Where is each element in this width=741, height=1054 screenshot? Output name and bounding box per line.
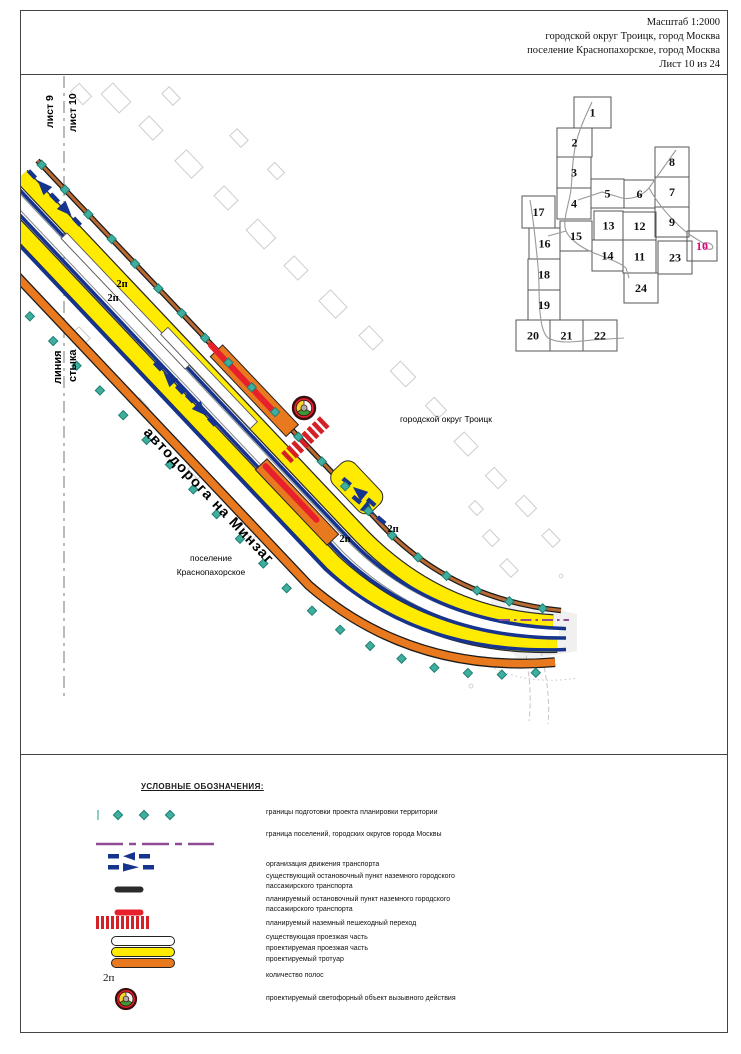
- building-outline: [515, 495, 536, 516]
- header-settlement: поселение Краснопахорское, город Москва: [527, 44, 720, 58]
- index-tile-number: 24: [635, 281, 647, 295]
- boundary-diamond: [282, 584, 291, 593]
- boundary-diamond: [307, 606, 316, 615]
- building-outline: [268, 162, 285, 179]
- index-tile-number: 11: [634, 250, 645, 264]
- boundary-diamond: [119, 411, 128, 420]
- index-tile-number: 17: [533, 205, 545, 219]
- legend-title: УСЛОВНЫЕ ОБОЗНАЧЕНИЯ:: [141, 782, 264, 791]
- building-outline: [319, 290, 347, 318]
- legend-marker-traffic-arrows: [108, 852, 156, 878]
- lane-count-label: 2п: [116, 279, 127, 290]
- legend-marker-boundary-diamonds: [96, 808, 196, 827]
- building-outline: [390, 361, 415, 387]
- header-district: городской округ Троицк, город Москва: [527, 30, 720, 44]
- legend-label: существующая проезжая часть: [266, 933, 478, 943]
- building-outline: [485, 467, 506, 488]
- index-tile-number: 14: [602, 249, 614, 263]
- traffic-signal-map: [293, 397, 315, 419]
- legend-label: граница поселений, городских округов гор…: [266, 830, 478, 840]
- index-tile-number: 23: [669, 251, 681, 265]
- legend-label: организация движения транспорта: [266, 860, 478, 870]
- boundary-diamond: [531, 668, 540, 677]
- index-tile-number: 9: [669, 215, 675, 229]
- legend-label: планируемый остановочный пункт наземного…: [266, 895, 478, 914]
- legend-label: проектируемый тротуар: [266, 955, 478, 965]
- legend-label: проектируемая проезжая часть: [266, 944, 478, 954]
- legend-label: количество полос: [266, 971, 478, 981]
- legend-marker-traffic-signal: [113, 986, 139, 1017]
- settlement-label-1: поселение: [190, 553, 232, 563]
- building-outline: [359, 326, 383, 350]
- boundary-diamond: [25, 312, 34, 321]
- index-tile-number: 13: [603, 219, 615, 233]
- sheet-frame: Масштаб 1:2000 городской округ Троицк, г…: [20, 10, 728, 1033]
- map-area: лист 9 лист 10 линия стыка автодорога на…: [21, 75, 727, 755]
- building-outline: [214, 186, 238, 210]
- building-outline: [500, 559, 518, 577]
- lane-count-label: 2п: [387, 524, 398, 535]
- index-tile-number: 3: [571, 166, 577, 180]
- index-tile-number: 8: [669, 155, 675, 169]
- boundary-diamond: [365, 641, 374, 650]
- legend-label: планируемый наземный пешеходный переход: [266, 919, 478, 929]
- index-map-road-lines: [530, 102, 714, 342]
- lane-count-label: 2п: [107, 293, 118, 304]
- lane-count-label: 2п: [339, 534, 350, 545]
- sheet-index-map: 123456789101112131415161718192021222324: [514, 88, 726, 360]
- index-tile-number: 2: [572, 136, 578, 150]
- boundary-diamond: [497, 670, 506, 679]
- sheet-label-9: лист 9: [44, 95, 56, 128]
- index-tile-number: 5: [605, 187, 611, 201]
- index-tile-number: 4: [571, 197, 577, 211]
- map-scale: Масштаб 1:2000: [527, 16, 720, 30]
- header-band: Масштаб 1:2000 городской округ Троицк, г…: [21, 11, 727, 75]
- district-label: городской округ Троицк: [400, 414, 492, 424]
- settlement-label-2: Краснопахорское: [177, 567, 246, 577]
- index-tile-number: 7: [669, 185, 675, 199]
- boundary-diamond: [430, 663, 439, 672]
- index-tile-number: 19: [538, 298, 550, 312]
- index-tile-number: 10: [696, 239, 708, 253]
- sheet-number: Лист 10 из 24: [527, 58, 720, 72]
- index-tile-number: 20: [527, 329, 539, 343]
- boundary-diamond: [336, 625, 345, 634]
- building-outline: [246, 219, 276, 249]
- building-outline: [139, 116, 163, 140]
- seam-label-2: стыка: [67, 349, 79, 382]
- sheet-label-10: лист 10: [67, 93, 79, 132]
- building-outline: [230, 129, 248, 147]
- legend-marker-pedestrian-crossing: [96, 916, 152, 934]
- legend-label: границы подготовки проекта планировки те…: [266, 808, 478, 818]
- index-tile-number: 16: [539, 237, 551, 251]
- building-outline: [175, 150, 203, 178]
- building-outline: [454, 432, 478, 456]
- building-outline: [469, 501, 484, 516]
- legend-marker-planned-sidewalk: [111, 955, 175, 973]
- header-text-block: Масштаб 1:2000 городской округ Троицк, г…: [527, 16, 720, 72]
- plan-sheet-page: { "header": { "scale": "Масштаб 1:2000",…: [0, 0, 741, 1054]
- legend-label: проектируемый светофорный объект вызывно…: [266, 994, 478, 1004]
- seam-label-1: линия: [52, 350, 64, 384]
- legend-marker-existing-stop: [114, 880, 144, 898]
- index-tile-number: 12: [634, 219, 646, 233]
- boundary-diamond: [49, 336, 58, 345]
- building-outline: [483, 529, 500, 546]
- building-outline: [284, 256, 308, 280]
- legend-label: существующий остановочный пункт наземног…: [266, 872, 478, 891]
- index-tile-number: 6: [637, 187, 643, 201]
- legend-area: УСЛОВНЫЕ ОБОЗНАЧЕНИЯ: границы подготовки…: [21, 756, 727, 1032]
- index-tile-number: 22: [594, 329, 606, 343]
- index-tile-number: 18: [538, 268, 550, 282]
- index-tile-number: 15: [570, 229, 582, 243]
- boundary-diamond: [397, 654, 406, 663]
- building-outline: [162, 87, 180, 105]
- boundary-diamond: [463, 668, 472, 677]
- index-tile-number: 21: [561, 329, 573, 343]
- boundary-diamond: [95, 386, 104, 395]
- building-outline: [542, 529, 560, 547]
- building-outline: [101, 83, 131, 113]
- legend-marker-settlement-boundary: [96, 834, 214, 852]
- legend-marker-lane-count: 2п: [103, 968, 114, 986]
- index-tile-number: 1: [590, 106, 596, 120]
